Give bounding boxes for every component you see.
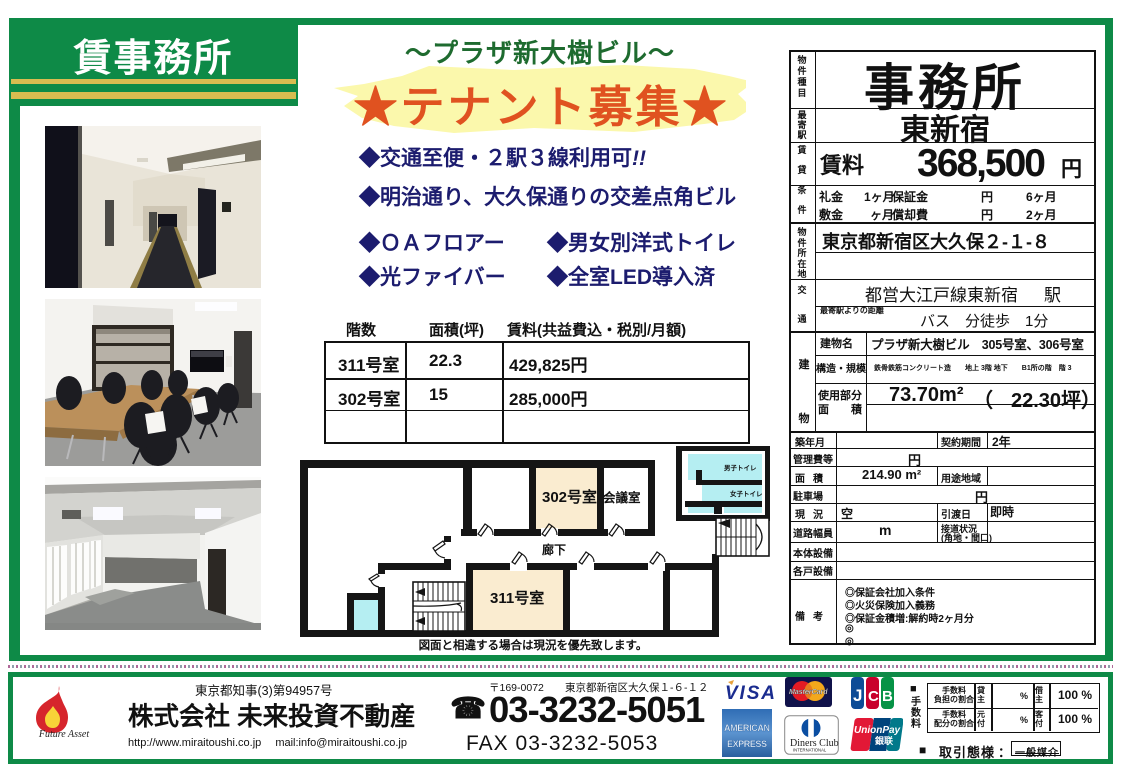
svg-text:302号室: 302号室 [542,488,597,506]
svg-text:女子トイレ: 女子トイレ [730,489,763,498]
svg-text:AMERICAN: AMERICAN [724,723,770,733]
svg-text:J: J [853,686,862,705]
svg-text:B: B [882,688,893,705]
svg-text:UnionPay: UnionPay [854,725,901,736]
svg-text:EXPRESS: EXPRESS [727,739,767,749]
svg-text:INTERNATIONAL: INTERNATIONAL [793,748,827,753]
svg-text:銀联: 銀联 [875,735,894,746]
svg-text:会議室: 会議室 [603,490,641,505]
svg-text:C: C [868,688,879,705]
svg-text:311号室: 311号室 [490,589,544,607]
svg-text:MasterCard: MasterCard [789,689,828,696]
svg-text:廊下: 廊下 [542,542,566,557]
svg-text:VISA: VISA [725,683,775,704]
svg-text:男子トイレ: 男子トイレ [723,464,757,472]
